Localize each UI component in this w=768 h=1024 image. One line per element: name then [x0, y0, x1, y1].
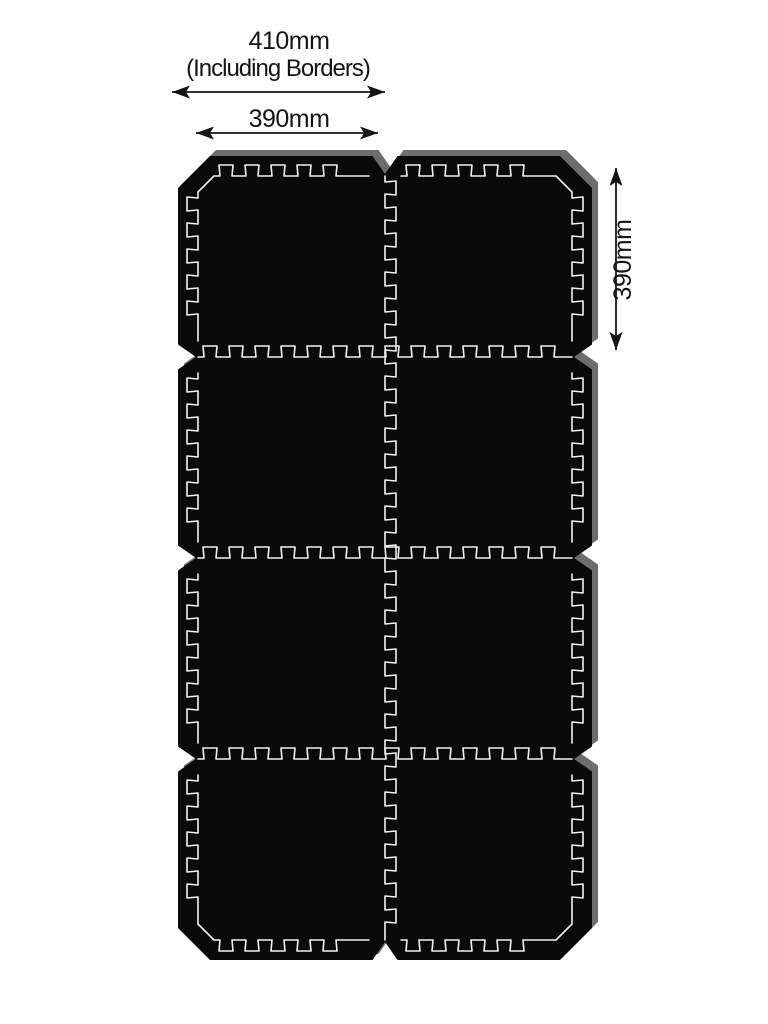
foam-mat-dimension-diagram: 410mm (Including Borders) 390mm 390mm — [0, 0, 768, 1024]
tile-width-label: 390mm — [249, 105, 330, 133]
overall-width-sublabel: (Including Borders) — [186, 55, 370, 82]
overall-width-arrow — [172, 86, 385, 99]
diagram-canvas: 410mm (Including Borders) 390mm 390mm — [0, 0, 768, 1024]
overall-width-label: 410mm — [249, 27, 330, 55]
tile-height-label: 390mm — [609, 220, 637, 301]
